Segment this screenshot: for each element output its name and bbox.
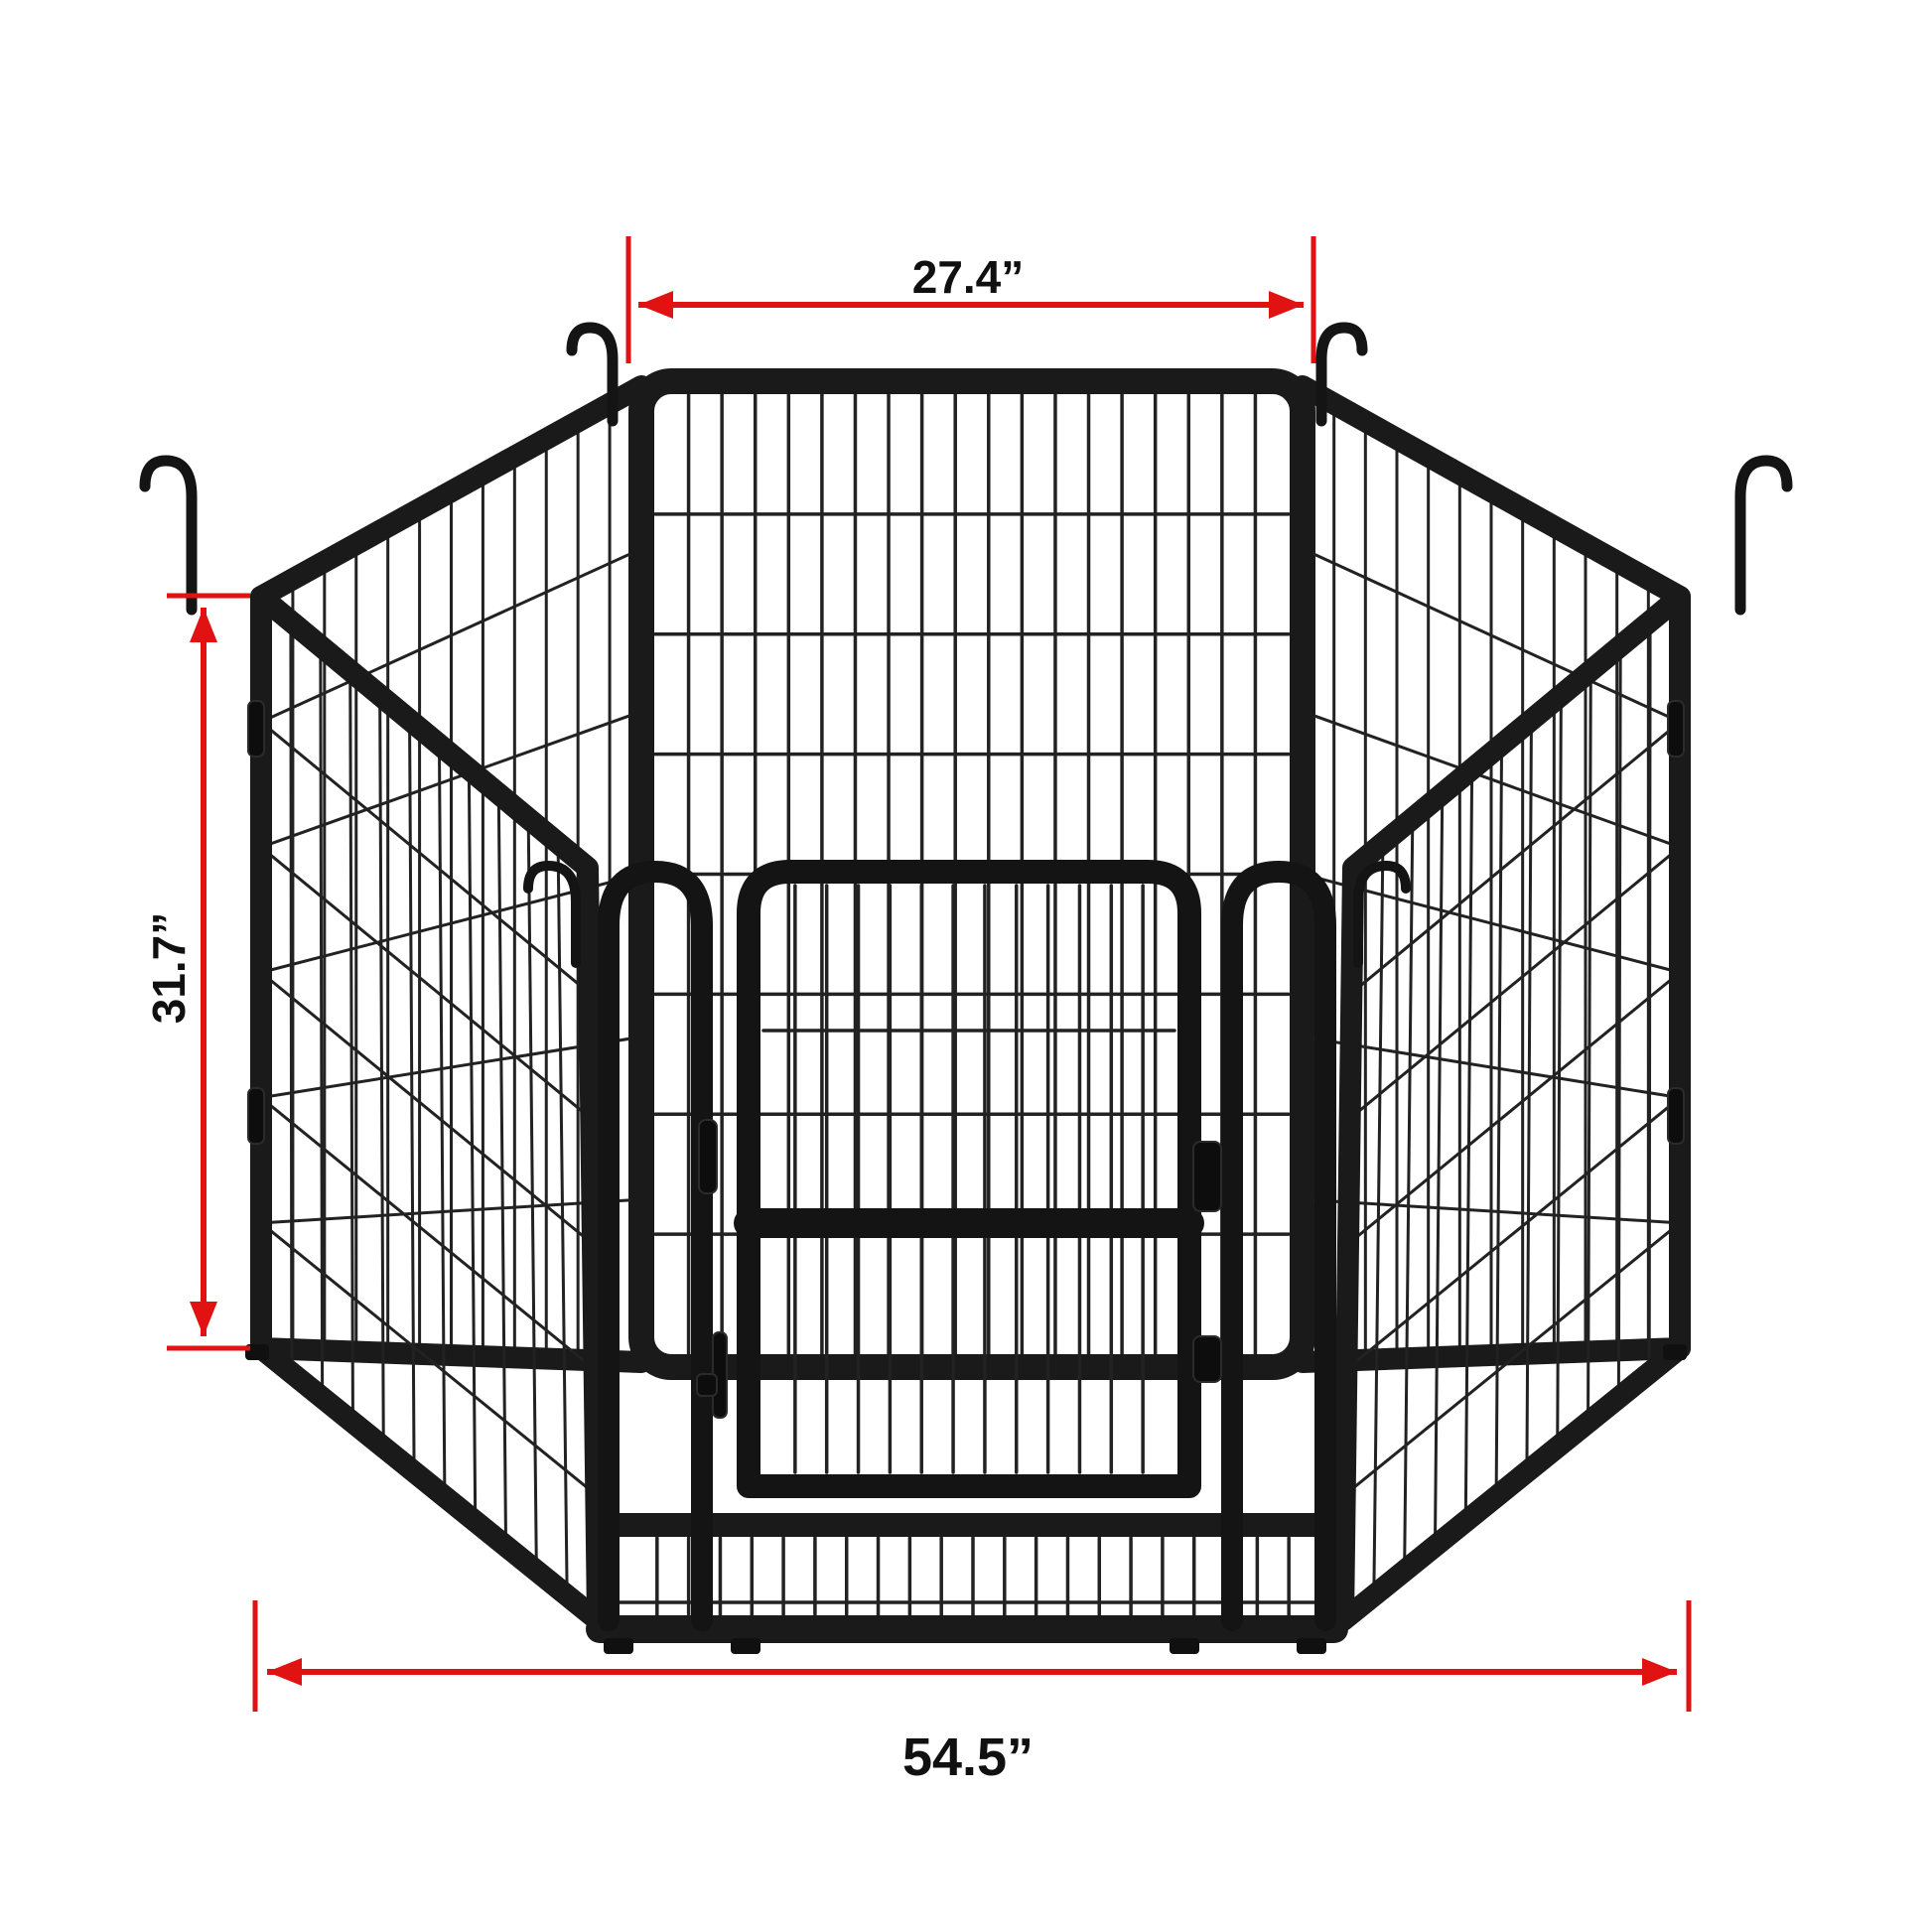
mesh-wire [1351, 722, 1680, 993]
panel-hinge [1668, 701, 1684, 757]
panel-foot [1170, 1638, 1199, 1654]
door-hinge [1193, 1336, 1221, 1382]
front-right-panel-mesh [1345, 621, 1680, 1595]
mesh-wire [261, 847, 591, 1118]
panel-foot [1663, 1344, 1687, 1360]
door-hinge [1193, 1142, 1221, 1211]
dimension-total-width-label: 54.5” [902, 1727, 1034, 1787]
mesh-wire [261, 722, 590, 993]
playpen-diagram-canvas: 27.4” 31.7” 54.5” [0, 0, 1932, 1932]
front-right-panel [1343, 597, 1680, 1620]
mesh-wire [1350, 847, 1680, 1118]
door-latch-knob [697, 1374, 717, 1396]
door-mesh [795, 886, 1143, 1472]
anchor-hook-icon [1740, 461, 1787, 610]
door-latch-catch [699, 1120, 717, 1193]
panel-hinge [248, 1088, 264, 1144]
door [697, 872, 1221, 1486]
panel-hinge [248, 701, 264, 757]
dimension-top-width: 27.4” [628, 236, 1313, 363]
panel-foot [731, 1638, 760, 1654]
front-panel [528, 866, 1406, 1654]
mesh-wire [261, 973, 593, 1245]
dimension-panel-height: 31.7” [143, 596, 250, 1348]
dimension-panel-height-label: 31.7” [143, 912, 195, 1025]
panel-foot [604, 1638, 633, 1654]
panel-hinge [1668, 1088, 1684, 1144]
front-panel-lower-mesh [657, 1538, 1289, 1616]
panel-foot [1297, 1638, 1326, 1654]
anchor-hook-icon [145, 461, 192, 610]
playpen-dimension-diagram: 27.4” 31.7” 54.5” [0, 0, 1932, 1932]
mesh-wire [261, 1098, 595, 1370]
dimension-top-width-label: 27.4” [912, 251, 1025, 303]
